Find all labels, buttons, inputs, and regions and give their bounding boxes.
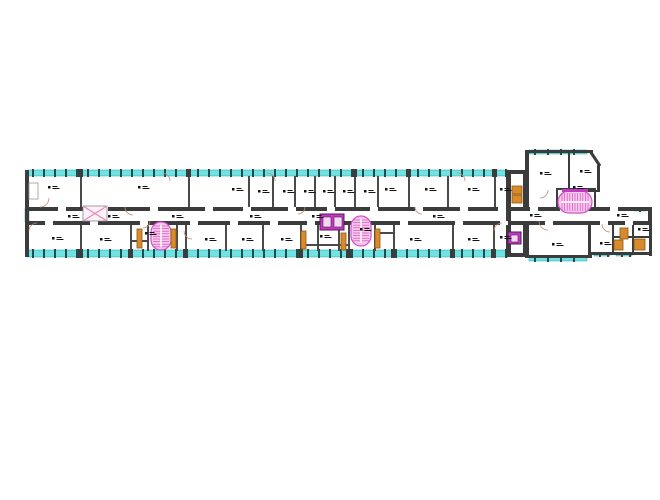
partition-wall bbox=[314, 176, 316, 207]
room-tag-icon bbox=[242, 238, 245, 241]
room-tag-icon bbox=[250, 215, 253, 218]
window-mullion-tick bbox=[219, 249, 221, 258]
partition-wall bbox=[185, 225, 187, 251]
partition-wall bbox=[225, 225, 227, 251]
room-tag-line bbox=[438, 215, 443, 216]
room-tag-icon bbox=[100, 238, 103, 241]
door-opening bbox=[370, 207, 378, 211]
wall bbox=[612, 236, 652, 238]
window-mullion-tick bbox=[384, 169, 386, 177]
room-tag-icon bbox=[52, 237, 55, 240]
door-opening bbox=[190, 221, 198, 225]
room-tag-line bbox=[105, 240, 112, 241]
room-tag-icon bbox=[304, 190, 307, 193]
wall-junction bbox=[406, 169, 411, 177]
room-tag-line bbox=[325, 235, 330, 236]
door bbox=[137, 229, 142, 248]
window-mullion-tick bbox=[120, 169, 122, 177]
window-mullion-tick bbox=[43, 169, 45, 177]
room-tag-line bbox=[535, 214, 540, 215]
window-mullion-tick bbox=[32, 249, 34, 258]
wall bbox=[525, 150, 593, 153]
partition-wall bbox=[188, 176, 190, 207]
floorplan-page bbox=[0, 0, 660, 500]
wall bbox=[568, 153, 570, 191]
window-mullion-tick bbox=[76, 249, 78, 258]
wall bbox=[506, 170, 527, 174]
window-mullion-tick bbox=[417, 249, 419, 258]
window-mullion-tick bbox=[142, 249, 144, 258]
window-mullion-tick bbox=[483, 169, 485, 177]
room-tag-line bbox=[177, 215, 182, 216]
window-mullion-tick bbox=[76, 169, 78, 177]
wall-junction bbox=[78, 169, 83, 177]
room-tag-line bbox=[317, 217, 324, 218]
wall bbox=[594, 188, 596, 208]
partition-wall bbox=[248, 176, 250, 207]
partition-wall bbox=[452, 225, 454, 251]
window-mullion-tick bbox=[120, 249, 122, 258]
room-tag-icon bbox=[500, 188, 503, 191]
room-tag-line bbox=[622, 216, 629, 217]
room-tag-line bbox=[317, 215, 322, 216]
wall bbox=[649, 221, 652, 256]
room-tag-line bbox=[415, 238, 420, 239]
door-swing-arc bbox=[40, 198, 49, 207]
window-mullion-tick bbox=[98, 169, 100, 177]
room-tag-icon bbox=[385, 188, 388, 191]
room-tag-line bbox=[210, 238, 215, 239]
window-mullion-tick bbox=[395, 169, 397, 177]
room-tag-line bbox=[557, 245, 564, 246]
room-tag-line bbox=[255, 215, 260, 216]
room-tag-line bbox=[430, 190, 437, 191]
wall bbox=[588, 221, 591, 257]
window-mullion-tick bbox=[208, 169, 210, 177]
window-mullion-tick bbox=[54, 249, 56, 258]
room-tag-icon bbox=[320, 235, 323, 238]
room-tag-line bbox=[210, 240, 217, 241]
window-mullion-tick bbox=[362, 249, 364, 258]
room-tag-line bbox=[585, 172, 592, 173]
room-tag-line bbox=[177, 217, 184, 218]
door-opening bbox=[58, 207, 66, 211]
door bbox=[634, 239, 645, 250]
door-opening bbox=[600, 221, 608, 225]
partition-wall bbox=[272, 176, 274, 207]
wall-junction bbox=[491, 249, 496, 258]
window-mullion-tick bbox=[472, 249, 474, 258]
partition-wall bbox=[317, 225, 319, 251]
window-mullion-tick bbox=[263, 169, 265, 177]
room-tag-icon bbox=[283, 190, 286, 193]
door-leaf bbox=[29, 183, 38, 199]
room-tag-icon bbox=[281, 238, 284, 241]
window-mullion-tick bbox=[406, 249, 408, 258]
door-opening bbox=[460, 207, 468, 211]
partition-wall bbox=[408, 176, 410, 207]
window-mullion-tick bbox=[241, 169, 243, 177]
room-tag-line bbox=[247, 240, 254, 241]
window-mullion-tick bbox=[307, 249, 309, 258]
door bbox=[341, 233, 346, 250]
window-mullion-tick bbox=[285, 169, 287, 177]
room-tag-icon bbox=[552, 243, 555, 246]
room-tag-line bbox=[150, 232, 155, 233]
room-tag-line bbox=[113, 217, 120, 218]
room-tag-line bbox=[415, 240, 422, 241]
room-tag-line bbox=[328, 190, 333, 191]
room-tag-line bbox=[288, 190, 293, 191]
room-tag-icon bbox=[343, 190, 346, 193]
window-mullion-tick bbox=[197, 249, 199, 258]
room-tag-icon bbox=[232, 188, 235, 191]
window-mullion-tick bbox=[274, 169, 276, 177]
room-tag-line bbox=[348, 190, 353, 191]
room-tag-line bbox=[237, 188, 242, 189]
room-tag-icon bbox=[468, 238, 471, 241]
window-mullion-tick bbox=[296, 249, 298, 258]
partition-wall bbox=[494, 176, 496, 207]
partition-wall bbox=[262, 225, 264, 251]
room-tag-line bbox=[369, 192, 376, 193]
door-opening bbox=[243, 207, 251, 211]
window-mullion-tick bbox=[197, 169, 199, 177]
room-tag-line bbox=[73, 217, 80, 218]
room-tag-line bbox=[150, 234, 157, 235]
window-mullion-tick bbox=[329, 249, 331, 258]
window-mullion-tick bbox=[54, 169, 56, 177]
elevator-car bbox=[334, 217, 342, 227]
partition-wall bbox=[354, 176, 356, 207]
wall-junction bbox=[186, 169, 191, 177]
room-tag-line bbox=[473, 190, 480, 191]
window-mullion-tick bbox=[274, 249, 276, 258]
room-tag-line bbox=[365, 228, 370, 229]
room-tag-icon bbox=[433, 215, 436, 218]
room-tag-line bbox=[438, 217, 445, 218]
window-mullion-tick bbox=[164, 249, 166, 258]
wall-junction bbox=[128, 249, 133, 258]
room-tag-line bbox=[286, 238, 291, 239]
room-tag-icon bbox=[580, 170, 583, 173]
room-tag-line bbox=[57, 239, 64, 240]
door-swing-arc bbox=[602, 224, 610, 232]
door-opening bbox=[545, 221, 553, 225]
window-mullion-tick bbox=[461, 249, 463, 258]
window-mullion-tick bbox=[439, 169, 441, 177]
room-tag-icon bbox=[258, 190, 261, 193]
room-tag-line bbox=[348, 192, 355, 193]
room-tag-line bbox=[57, 237, 62, 238]
room-tag-icon bbox=[530, 214, 533, 217]
partition-wall bbox=[447, 176, 449, 207]
window-mullion-tick bbox=[252, 169, 254, 177]
room-tag-line bbox=[545, 174, 552, 175]
door bbox=[375, 229, 380, 248]
room-tag-line bbox=[309, 190, 314, 191]
floorplan-canvas bbox=[0, 0, 660, 500]
room-tag-line bbox=[643, 230, 650, 231]
door-opening bbox=[530, 207, 538, 211]
room-tag-line bbox=[473, 240, 480, 241]
wall bbox=[525, 255, 592, 258]
room-tag-line bbox=[263, 190, 268, 191]
room-tag-line bbox=[505, 236, 510, 237]
door bbox=[614, 240, 623, 250]
wall bbox=[556, 188, 558, 208]
door bbox=[301, 231, 306, 249]
window-mullion-tick bbox=[219, 169, 221, 177]
room-tag-line bbox=[286, 240, 293, 241]
door-opening bbox=[625, 221, 633, 225]
partition-wall bbox=[80, 225, 82, 251]
room-tag-icon bbox=[312, 215, 315, 218]
window-mullion-tick bbox=[98, 249, 100, 258]
window-mullion-tick bbox=[230, 169, 232, 177]
window-mullion-tick bbox=[87, 169, 89, 177]
room-tag-icon bbox=[360, 228, 363, 231]
wall bbox=[25, 170, 29, 257]
room-tag-line bbox=[585, 170, 590, 171]
room-tag-icon bbox=[364, 190, 367, 193]
room-tag-line bbox=[288, 192, 295, 193]
wall bbox=[597, 165, 600, 192]
door-opening bbox=[45, 221, 53, 225]
door-opening bbox=[455, 221, 463, 225]
room-tag-line bbox=[365, 230, 372, 231]
window-mullion-tick bbox=[296, 169, 298, 177]
room-tag-icon bbox=[172, 215, 175, 218]
window-mullion-tick bbox=[472, 169, 474, 177]
room-tag-icon bbox=[323, 190, 326, 193]
room-tag-line bbox=[143, 186, 148, 187]
wall bbox=[525, 221, 529, 257]
window-mullion-tick bbox=[340, 169, 342, 177]
window-mullion-tick bbox=[483, 249, 485, 258]
room-tag-icon bbox=[468, 188, 471, 191]
window-mullion-tick bbox=[428, 169, 430, 177]
partition-wall bbox=[348, 225, 350, 251]
room-tag-line bbox=[53, 186, 58, 187]
room-tag-line bbox=[505, 190, 512, 191]
room-tag-icon bbox=[500, 236, 503, 239]
window-mullion-tick bbox=[175, 169, 177, 177]
room-tag-icon bbox=[138, 186, 141, 189]
window-mullion-tick bbox=[230, 249, 232, 258]
window-mullion-tick bbox=[32, 169, 34, 177]
room-tag-line bbox=[247, 238, 252, 239]
window-mullion-tick bbox=[417, 169, 419, 177]
partition-wall bbox=[393, 225, 395, 251]
room-tag-line bbox=[390, 188, 395, 189]
room-tag-icon bbox=[68, 215, 71, 218]
partition-wall bbox=[80, 176, 82, 207]
door-opening bbox=[205, 207, 213, 211]
room-tag-line bbox=[505, 188, 510, 189]
door bbox=[512, 195, 522, 203]
window-mullion-tick bbox=[65, 249, 67, 258]
door-opening bbox=[270, 221, 278, 225]
partition-wall bbox=[130, 225, 132, 251]
room-tag-icon bbox=[205, 238, 208, 241]
room-tag-line bbox=[309, 192, 316, 193]
room-tag-line bbox=[605, 244, 612, 245]
wall-junction bbox=[492, 169, 497, 177]
room-tag-line bbox=[557, 243, 562, 244]
window-mullion-tick bbox=[428, 249, 430, 258]
wall-junction bbox=[352, 169, 357, 177]
room-tag-line bbox=[143, 188, 150, 189]
room-tag-line bbox=[325, 237, 332, 238]
partition-wall bbox=[334, 176, 336, 207]
room-tag-line bbox=[605, 242, 610, 243]
door bbox=[620, 228, 628, 239]
door-opening bbox=[327, 207, 335, 211]
elevator-car bbox=[323, 217, 331, 227]
diagonal-wall bbox=[590, 151, 600, 166]
wall bbox=[525, 150, 529, 207]
window-mullion-tick bbox=[307, 169, 309, 177]
room-tag-line bbox=[53, 188, 60, 189]
room-tag-line bbox=[545, 172, 550, 173]
room-tag-line bbox=[622, 214, 627, 215]
room-tag-icon bbox=[145, 232, 148, 235]
room-tag-line bbox=[237, 190, 244, 191]
room-tag-line bbox=[255, 217, 262, 218]
door-opening bbox=[288, 207, 296, 211]
window-mullion-tick bbox=[362, 169, 364, 177]
room-tag-line bbox=[369, 190, 374, 191]
door bbox=[512, 186, 522, 194]
wall-junction bbox=[78, 249, 83, 258]
window-mullion-tick bbox=[351, 249, 353, 258]
window-mullion-tick bbox=[241, 249, 243, 258]
room-tag-icon bbox=[540, 172, 543, 175]
door-opening bbox=[140, 221, 148, 225]
door-opening bbox=[400, 221, 408, 225]
window-mullion-tick bbox=[142, 169, 144, 177]
room-tag-line bbox=[113, 215, 118, 216]
door-opening bbox=[498, 207, 506, 211]
elevator-car bbox=[511, 235, 518, 242]
window-mullion-tick bbox=[109, 249, 111, 258]
room-tag-line bbox=[505, 238, 512, 239]
window-mullion-tick bbox=[439, 249, 441, 258]
window-mullion-tick bbox=[373, 169, 375, 177]
wall-junction bbox=[298, 249, 303, 258]
room-tag-line bbox=[263, 192, 270, 193]
room-tag-line bbox=[473, 238, 478, 239]
window-mullion-tick bbox=[384, 249, 386, 258]
room-tag-line bbox=[473, 188, 478, 189]
wall bbox=[590, 252, 652, 255]
door-opening bbox=[230, 221, 238, 225]
room-tag-line bbox=[390, 190, 397, 191]
room-tag-icon bbox=[573, 186, 576, 189]
wall-junction bbox=[346, 249, 351, 258]
wall bbox=[27, 221, 506, 225]
window-mullion-tick bbox=[208, 249, 210, 258]
window-mullion-tick bbox=[450, 169, 452, 177]
room-tag-line bbox=[643, 228, 648, 229]
room-tag-line bbox=[535, 216, 542, 217]
window-mullion-tick bbox=[109, 169, 111, 177]
room-tag-line bbox=[105, 238, 110, 239]
window-mullion-tick bbox=[87, 249, 89, 258]
room-tag-line bbox=[578, 186, 583, 187]
window-mullion-tick bbox=[131, 169, 133, 177]
stair-direction-bar bbox=[562, 189, 588, 192]
door-opening bbox=[307, 221, 315, 225]
partition-wall bbox=[377, 176, 379, 207]
partition-wall bbox=[147, 225, 149, 251]
window-mullion-tick bbox=[65, 169, 67, 177]
room-tag-icon bbox=[410, 238, 413, 241]
door-swing-arc bbox=[540, 190, 548, 198]
wall bbox=[506, 253, 527, 257]
wall-junction bbox=[450, 249, 455, 258]
window-mullion-tick bbox=[285, 249, 287, 258]
door-opening bbox=[90, 221, 98, 225]
window-mullion-tick bbox=[43, 249, 45, 258]
room-tag-icon bbox=[600, 242, 603, 245]
room-tag-line bbox=[430, 188, 435, 189]
window-mullion-tick bbox=[252, 249, 254, 258]
window-mullion-tick bbox=[153, 169, 155, 177]
room-tag-icon bbox=[425, 188, 428, 191]
wall-junction bbox=[391, 249, 396, 258]
room-tag-icon bbox=[48, 186, 51, 189]
room-tag-icon bbox=[617, 214, 620, 217]
window-mullion-tick bbox=[153, 249, 155, 258]
window-mullion-tick bbox=[318, 169, 320, 177]
room-tag-line bbox=[328, 192, 335, 193]
room-tag-icon bbox=[638, 228, 641, 231]
wall-junction bbox=[183, 249, 188, 258]
partition-wall bbox=[294, 176, 296, 207]
door-opening bbox=[610, 207, 618, 211]
door-opening bbox=[150, 207, 158, 211]
window-mullion-tick bbox=[329, 169, 331, 177]
room-tag-icon bbox=[108, 215, 111, 218]
room-tag-line bbox=[578, 188, 585, 189]
room-tag-line bbox=[73, 215, 78, 216]
door bbox=[171, 229, 176, 248]
